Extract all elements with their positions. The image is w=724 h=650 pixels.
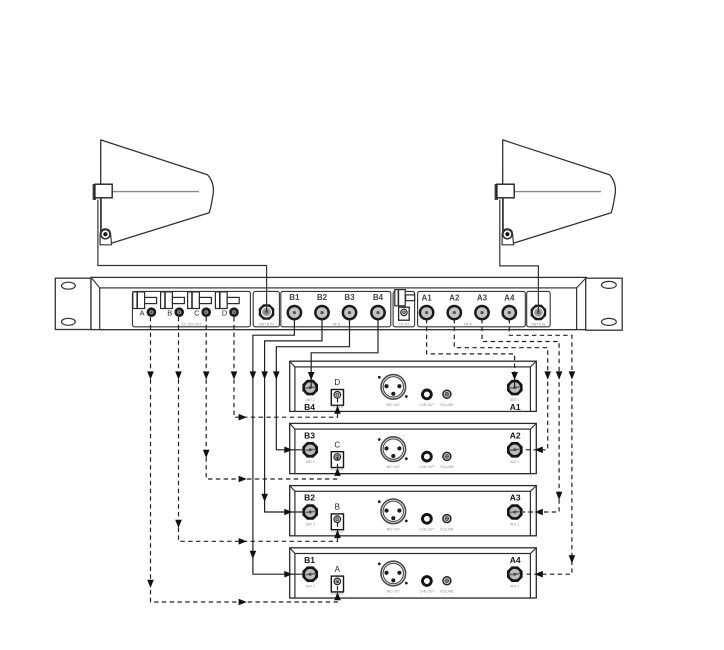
svg-text:A: A [139, 308, 144, 317]
svg-text:B4: B4 [373, 293, 384, 302]
svg-text:B2: B2 [304, 493, 315, 503]
svg-text:VOLUME: VOLUME [440, 527, 453, 531]
svg-text:VOLUME: VOLUME [440, 465, 453, 469]
svg-text:C: C [194, 308, 200, 317]
svg-text:A2: A2 [449, 294, 460, 303]
svg-text:ANT 1: ANT 1 [510, 522, 519, 526]
svg-text:MIC OUT: MIC OUT [387, 590, 401, 594]
svg-text:LINE OUT: LINE OUT [420, 403, 435, 407]
svg-text:DC 12V OUT: DC 12V OUT [181, 323, 201, 327]
svg-text:A1: A1 [510, 402, 521, 412]
svg-text:ANT 2: ANT 2 [306, 522, 315, 526]
svg-text:MIC OUT: MIC OUT [387, 465, 401, 469]
svg-text:A4: A4 [510, 555, 521, 565]
svg-text:DC IN: DC IN [399, 323, 409, 327]
svg-text:A4: A4 [504, 294, 515, 303]
svg-text:B4: B4 [304, 402, 315, 412]
svg-text:VOLUME: VOLUME [440, 403, 453, 407]
svg-text:B: B [335, 503, 340, 512]
svg-text:ANT B IN: ANT B IN [259, 323, 274, 327]
svg-text:B1: B1 [304, 555, 315, 565]
svg-text:B1: B1 [289, 293, 300, 302]
svg-text:MIC OUT: MIC OUT [387, 403, 401, 407]
svg-text:ANT 2: ANT 2 [306, 585, 315, 589]
svg-text:C: C [334, 440, 340, 449]
svg-text:B: B [167, 308, 172, 317]
svg-text:A: A [335, 565, 341, 574]
svg-text:LINE OUT: LINE OUT [420, 590, 435, 594]
svg-text:RF A: RF A [464, 323, 472, 327]
svg-text:B2: B2 [317, 293, 328, 302]
svg-text:ANT 1: ANT 1 [510, 460, 519, 464]
svg-text:VOLUME: VOLUME [440, 590, 453, 594]
svg-text:B3: B3 [304, 430, 315, 440]
svg-text:A2: A2 [510, 430, 521, 440]
svg-text:ANT 1: ANT 1 [510, 585, 519, 589]
svg-text:ANT 2: ANT 2 [306, 460, 315, 464]
svg-text:MIC OUT: MIC OUT [387, 527, 401, 531]
svg-text:D: D [334, 378, 340, 387]
svg-text:LINE OUT: LINE OUT [420, 465, 435, 469]
svg-text:LINE OUT: LINE OUT [420, 527, 435, 531]
svg-text:RF B: RF B [333, 323, 341, 327]
svg-text:ANT A IN: ANT A IN [531, 323, 545, 327]
svg-text:A3: A3 [477, 294, 488, 303]
svg-text:A1: A1 [421, 294, 432, 303]
svg-text:B3: B3 [344, 293, 355, 302]
svg-text:A3: A3 [510, 493, 521, 503]
svg-text:D: D [222, 308, 228, 317]
